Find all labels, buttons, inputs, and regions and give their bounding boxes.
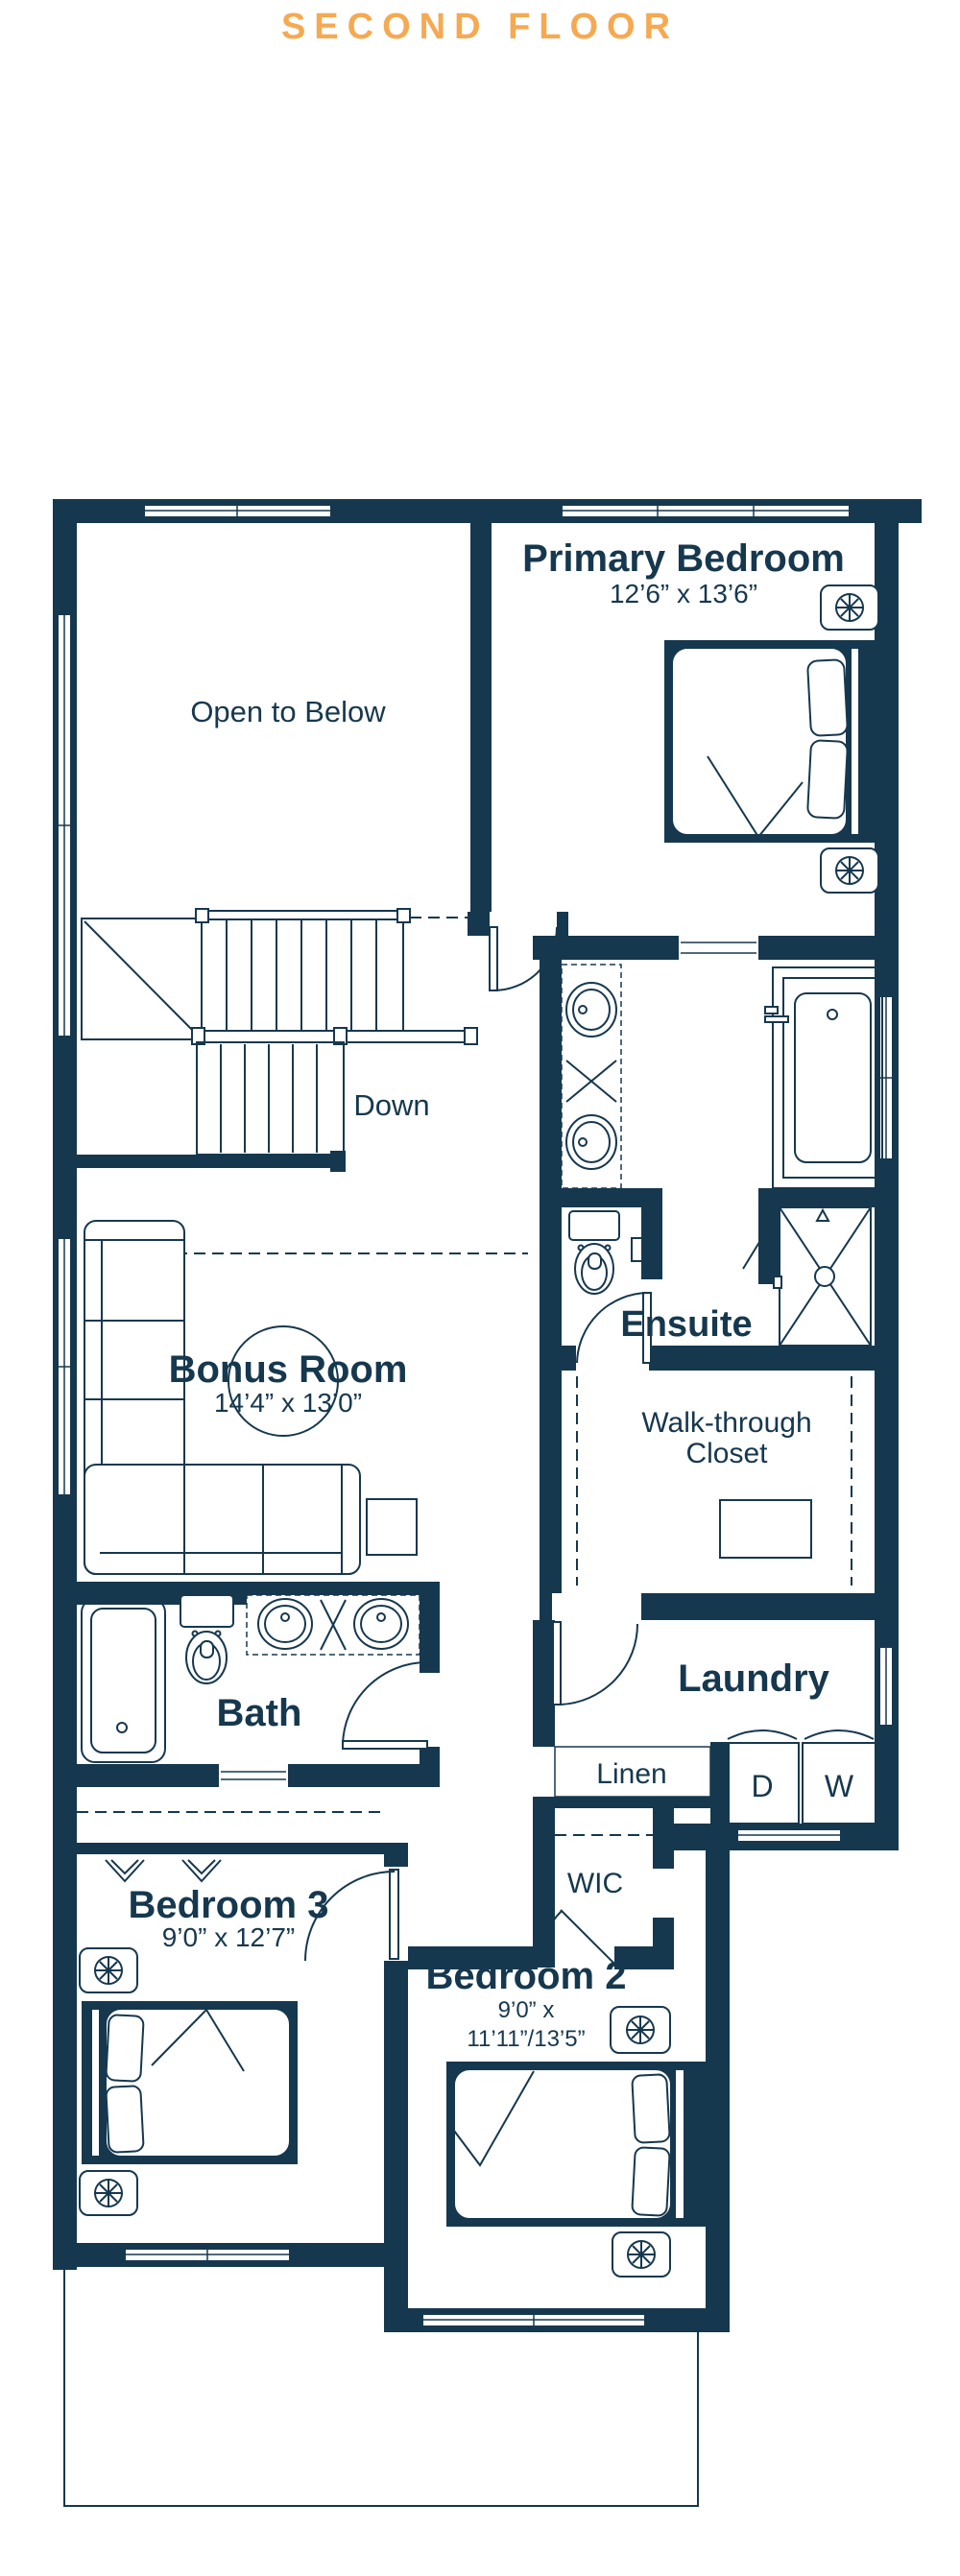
page-title: SECOND FLOOR <box>281 7 679 47</box>
bath-vanity <box>247 1595 420 1655</box>
primary-bed <box>664 640 876 843</box>
open-to-below-label: Open to Below <box>190 695 386 728</box>
washer-label: W <box>825 1769 854 1803</box>
soaker-tub <box>765 967 893 1188</box>
window-icon <box>58 1238 71 1495</box>
ensuite-label: Ensuite <box>620 1304 752 1345</box>
bathtub <box>82 1599 165 1762</box>
dryer-label: D <box>751 1769 773 1803</box>
bedroom-2-dims-2: 11’11”/13’5” <box>467 2026 585 2052</box>
primary-bedroom-label: Primary Bedroom <box>522 537 845 580</box>
laundry-label: Laundry <box>678 1658 830 1700</box>
door-bath <box>343 1662 427 1749</box>
ceiling-light-icon <box>821 848 878 893</box>
window-icon <box>562 505 850 517</box>
closet-dresser <box>720 1500 811 1558</box>
ceiling-light-icon <box>821 585 878 630</box>
bedroom2-bed <box>446 2062 708 2227</box>
wic-label: WIC <box>567 1868 623 1899</box>
window-icon <box>125 2249 290 2261</box>
door-laundry <box>553 1622 637 1705</box>
ceiling-light-icon <box>611 2007 670 2053</box>
floorplan-page: SECOND FLOOR <box>0 0 960 2576</box>
window-icon <box>144 505 331 517</box>
bedroom3-bed <box>82 2001 298 2164</box>
ensuite-vanity <box>562 965 621 1188</box>
ceiling-light-icon <box>612 2232 670 2277</box>
floor-plan-canvas: SECOND FLOOR <box>0 0 960 2576</box>
bedroom-3-label: Bedroom 3 <box>129 1884 329 1926</box>
window-icon <box>879 1647 893 1726</box>
ensuite-toilet <box>569 1211 619 1294</box>
window-icon <box>58 614 71 1037</box>
down-label: Down <box>353 1088 429 1122</box>
walk-through-closet-label-1: Walk-through <box>641 1407 811 1439</box>
window-icon <box>422 2314 645 2326</box>
bonus-room-label: Bonus Room <box>169 1348 408 1391</box>
linen-label: Linen <box>596 1758 666 1790</box>
bedroom-2-dims-1: 9’0” x <box>498 1997 555 2023</box>
bath-label: Bath <box>217 1692 302 1734</box>
bedroom-2-label: Bedroom 2 <box>426 1955 627 1997</box>
primary-bedroom-dims: 12’6” x 13’6” <box>610 579 757 608</box>
roof-outline <box>64 2267 698 2506</box>
closet-chevron-icon <box>106 1860 221 1881</box>
bath-toilet <box>180 1595 233 1683</box>
ceiling-light-icon <box>80 1948 137 1992</box>
bedroom-3-dims: 9’0” x 12’7” <box>162 1922 296 1952</box>
end-table <box>367 1499 417 1555</box>
walk-through-closet-label-2: Closet <box>685 1438 768 1469</box>
bonus-room-dims: 14’4” x 13’0” <box>214 1388 362 1418</box>
window-icon <box>737 1829 841 1842</box>
ceiling-light-icon <box>80 2171 137 2215</box>
